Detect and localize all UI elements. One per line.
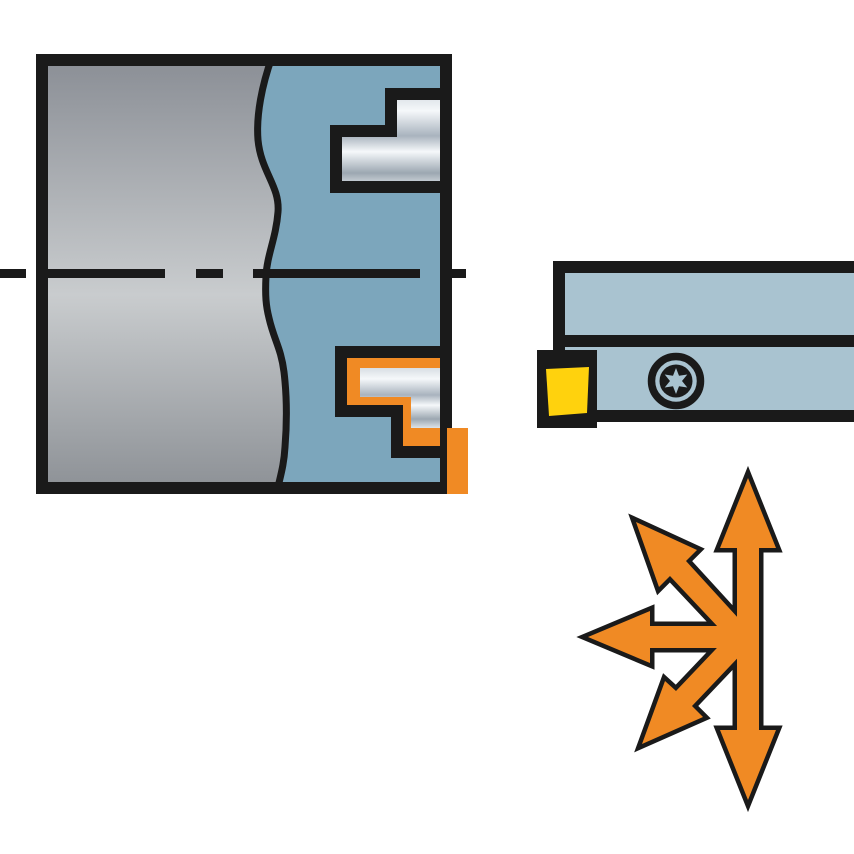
insert-position-marker	[447, 428, 468, 494]
holder-head	[565, 347, 854, 410]
multi-direction-arrows-icon	[588, 478, 776, 800]
workpiece-section-figure	[0, 57, 468, 494]
tool-holder-figure	[537, 261, 854, 428]
catalog-illustration	[0, 0, 854, 854]
cutting-insert	[546, 367, 589, 416]
tooling-diagram	[0, 0, 854, 854]
holder-shank	[565, 273, 854, 335]
